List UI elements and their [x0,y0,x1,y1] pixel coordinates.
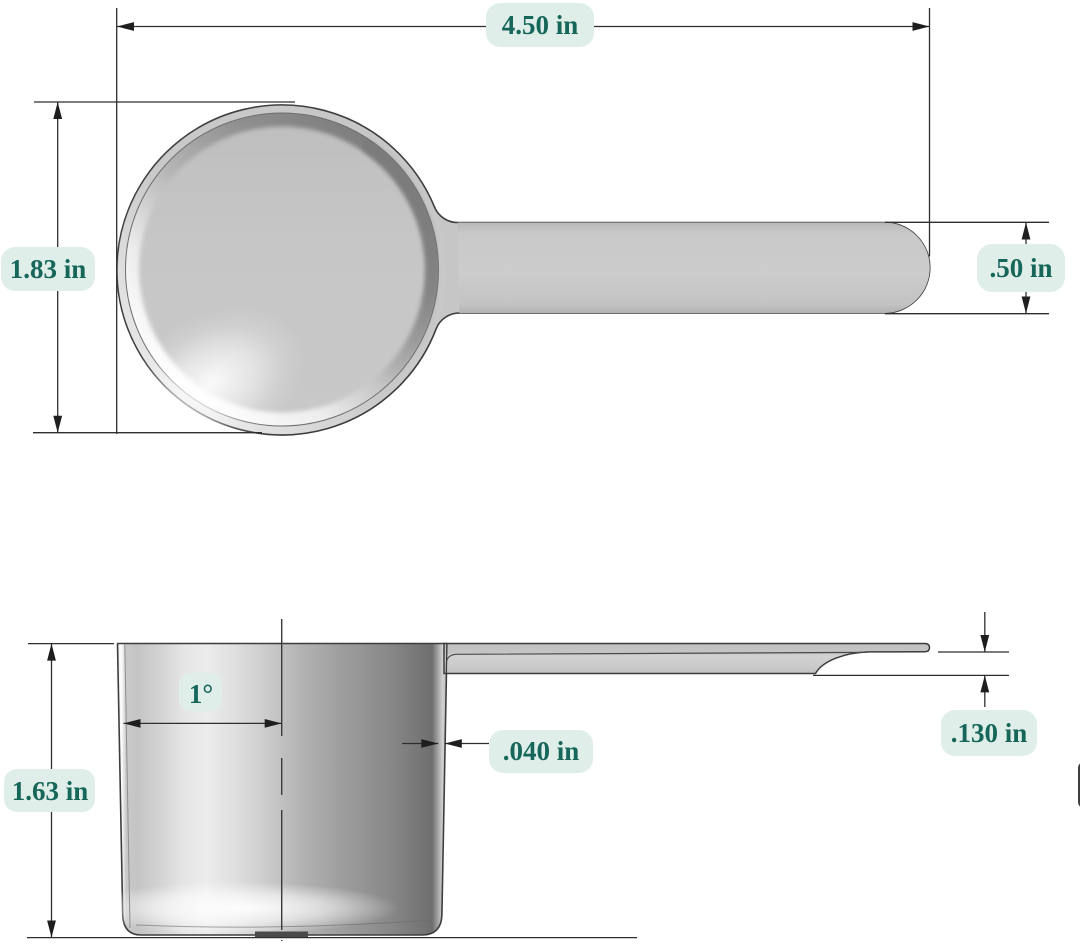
svg-text:1°: 1° [189,679,213,709]
svg-text:.130 in: .130 in [951,718,1028,748]
svg-text:.50 in: .50 in [989,253,1052,283]
svg-text:4.50 in: 4.50 in [502,10,579,40]
svg-text:1.63 in: 1.63 in [12,776,89,806]
svg-text:.040 in: .040 in [503,736,580,766]
svg-text:1.83 in: 1.83 in [10,254,87,284]
